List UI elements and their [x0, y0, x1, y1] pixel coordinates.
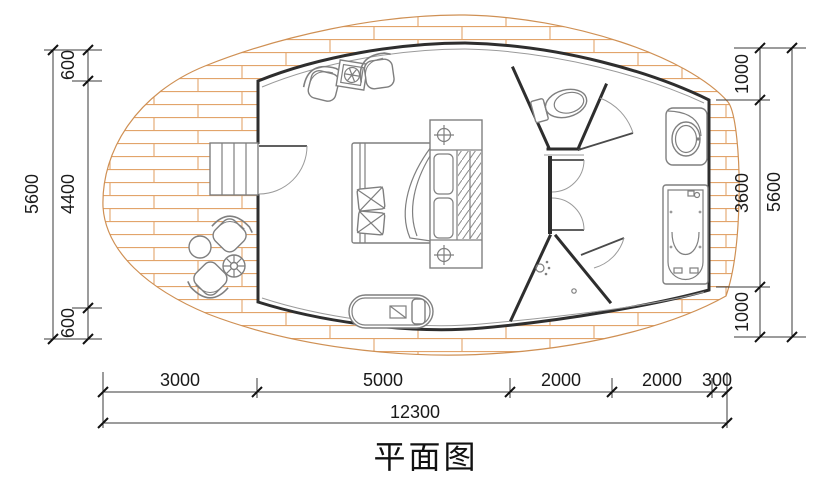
round-deck-table	[189, 236, 211, 258]
dim-bottom-total: 12300	[390, 402, 440, 422]
floor-plan-canvas: 5600 600 4400 600 1000 3600 1000 5600 30…	[0, 0, 837, 496]
dim-bottom-2000-b: 2000	[642, 370, 682, 390]
dim-right-outer-total: 5600	[764, 172, 784, 212]
dimension-left: 5600 600 4400 600	[22, 45, 102, 344]
floor-plan-drawing: 5600 600 4400 600 1000 3600 1000 5600 30…	[0, 0, 837, 496]
dim-right-3600: 3600	[732, 173, 752, 213]
dim-right-1000-top: 1000	[732, 54, 752, 94]
dim-bottom-300: 300	[702, 370, 732, 390]
dim-bottom-2000-a: 2000	[541, 370, 581, 390]
dim-left-4400: 4400	[58, 174, 78, 214]
parasol-table	[223, 255, 245, 277]
dim-left-600-bottom: 600	[58, 308, 78, 338]
dim-bottom-5000: 5000	[363, 370, 403, 390]
dim-left-outer-total: 5600	[22, 174, 42, 214]
pillow	[357, 187, 385, 212]
double-bed	[352, 143, 432, 243]
pillow	[357, 211, 385, 235]
dim-left-600-top: 600	[58, 50, 78, 80]
sink-vanity	[666, 108, 707, 165]
headboard-wardrobe-unit	[430, 120, 482, 268]
dim-right-1000-bottom: 1000	[732, 292, 752, 332]
entry-steps	[210, 143, 258, 195]
bathtub	[663, 185, 708, 284]
chaise-bench	[349, 295, 433, 328]
dim-bottom-3000: 3000	[160, 370, 200, 390]
dimension-bottom: 3000 5000 2000 2000 300 12300	[98, 370, 732, 428]
drawing-title: 平面图	[373, 439, 478, 475]
